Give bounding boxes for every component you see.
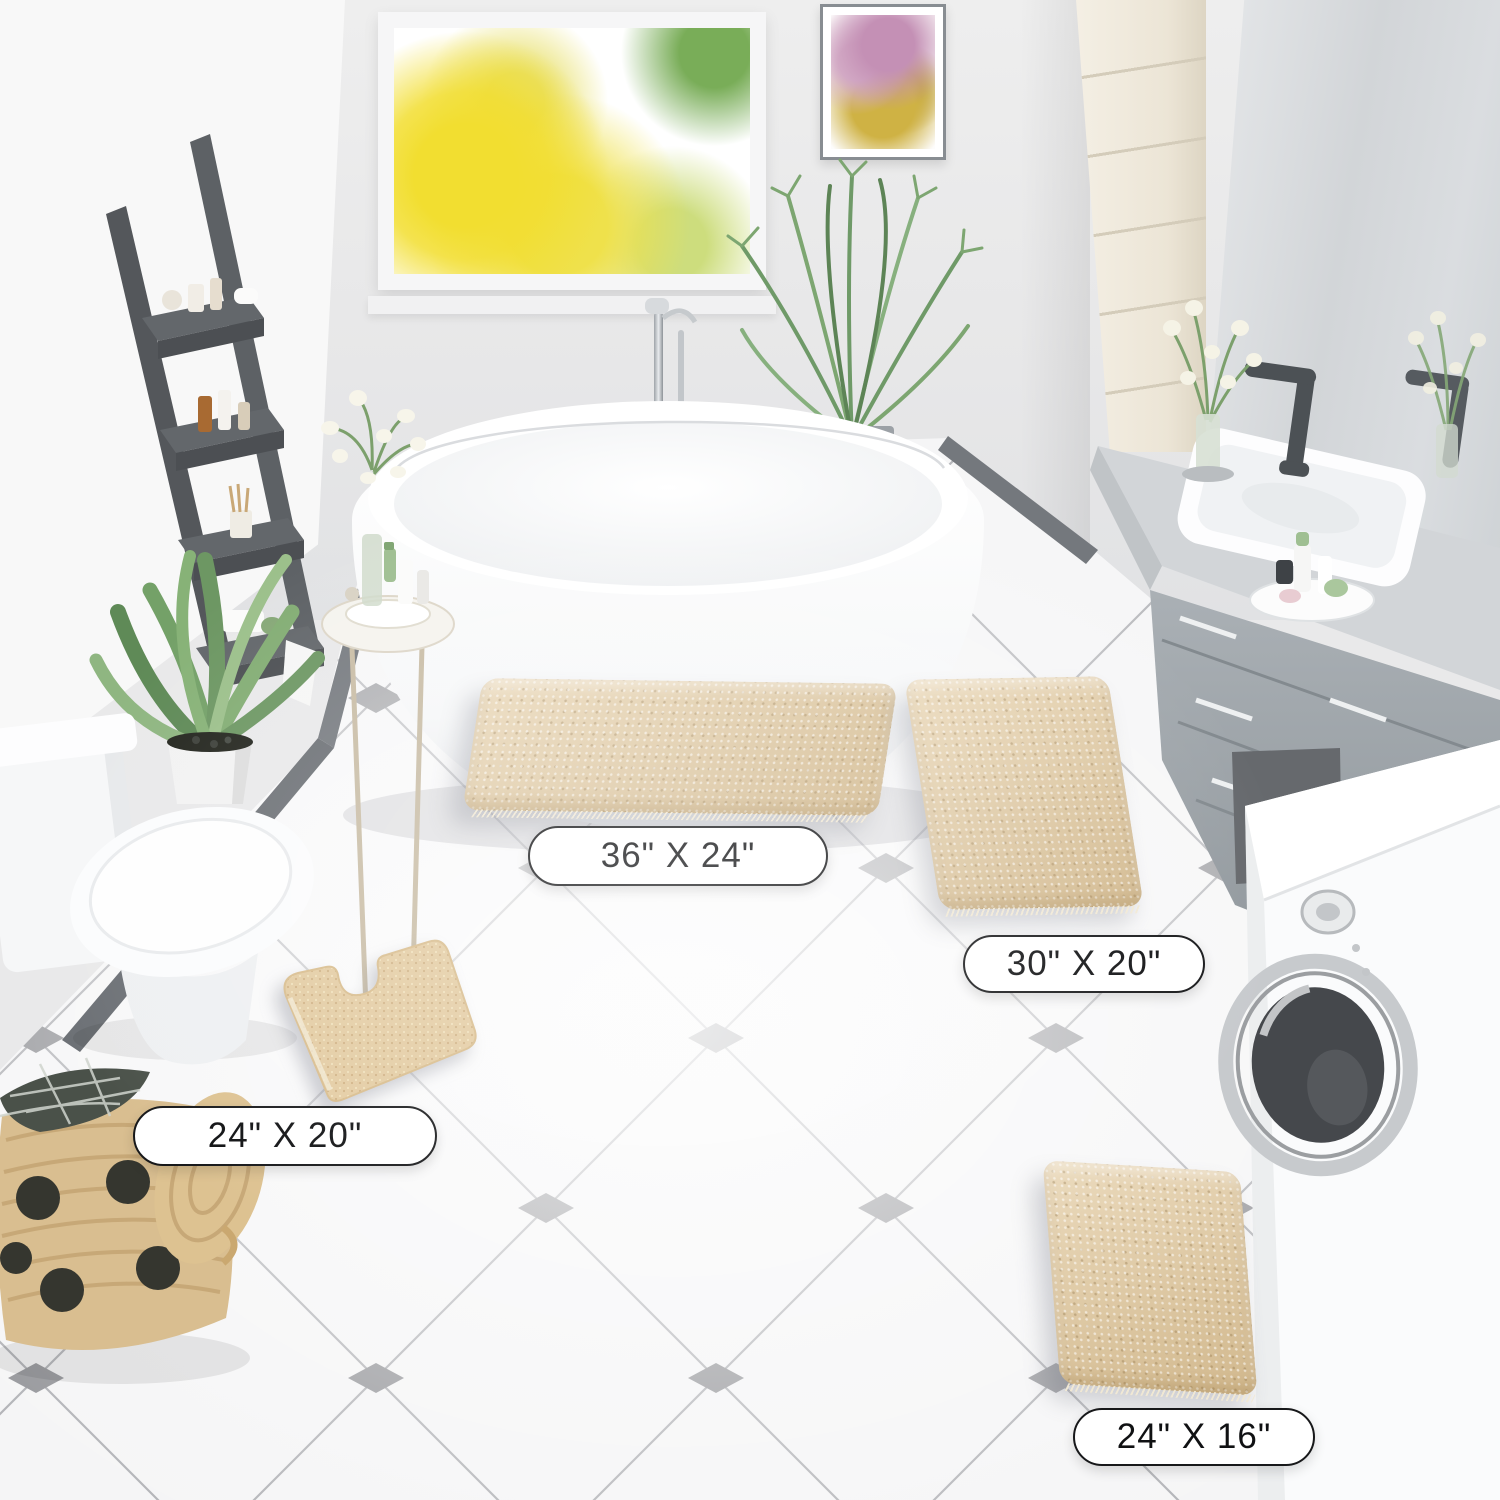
- bath-rug-30x20: [904, 676, 1144, 910]
- size-label-24x20: 24" X 20": [133, 1106, 437, 1166]
- size-label-24x16: 24" X 16": [1073, 1408, 1315, 1466]
- bath-rug-24x20-contour: [285, 941, 476, 1101]
- size-label-36x24: 36" X 24": [528, 826, 828, 886]
- mirror-flowers-reflection: [1408, 311, 1486, 478]
- size-label-30x20: 30" X 20": [963, 935, 1205, 993]
- side-table-tray: [346, 600, 430, 628]
- bath-rug-36x24: [462, 678, 898, 816]
- bathroom-scene: 36" X 24" 30" X 20" 24" X 20" 24" X 16": [0, 0, 1500, 1500]
- toilet: [0, 712, 332, 1064]
- bath-rug-24x16: [1042, 1160, 1257, 1396]
